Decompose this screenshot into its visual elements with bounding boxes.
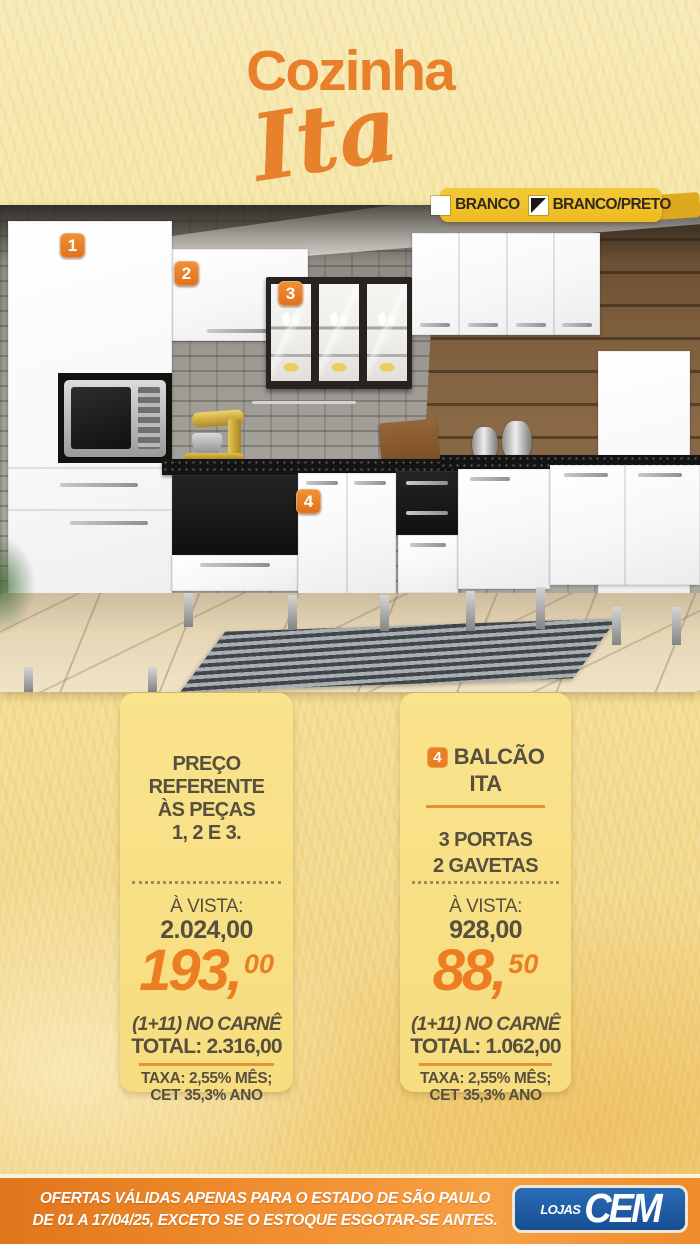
dotted-separator xyxy=(412,881,559,884)
product-name: 4BALCÃO ITA xyxy=(400,743,571,797)
color-option-branco: BRANCO xyxy=(431,196,519,215)
price-block: À VISTA: 928,00 88,50 (1+11) NO CARNÊ TO… xyxy=(400,896,571,1104)
oven-unit xyxy=(172,475,298,555)
logo-small-text: LOJAS xyxy=(540,1202,580,1217)
orange-rule xyxy=(139,1063,274,1066)
total-label: TOTAL: 2.316,00 xyxy=(120,1035,293,1058)
marker-1: 1 xyxy=(60,233,85,258)
carne-label: (1+11) NO CARNÊ xyxy=(400,1014,571,1035)
kitchen-photo: 1 2 3 4 xyxy=(0,205,700,692)
product-features: 3 PORTAS 2 GAVETAS xyxy=(400,827,571,879)
white-black-swatch-icon xyxy=(529,196,548,215)
color-option-label: BRANCO/PRETO xyxy=(553,196,671,214)
marker-4: 4 xyxy=(296,489,321,514)
dotted-separator xyxy=(132,881,281,884)
base-cabinet-right xyxy=(550,465,700,585)
total-label: TOTAL: 1.062,00 xyxy=(400,1035,571,1058)
oven-drawer xyxy=(172,555,298,591)
price-card-balcao: 4BALCÃO ITA 3 PORTAS 2 GAVETAS À VISTA: … xyxy=(400,693,571,1092)
card-title: PREÇO REFERENTE ÀS PEÇAS 1, 2 E 3. xyxy=(120,753,293,845)
tax-info: TAXA: 2,55% MÊS; CET 35,3% ANO xyxy=(120,1070,293,1104)
plant xyxy=(0,535,36,635)
carne-label: (1+11) NO CARNÊ xyxy=(120,1014,293,1035)
avista-label: À VISTA: xyxy=(120,896,293,917)
color-options-badge: BRANCO BRANCO/PRETO xyxy=(440,188,662,222)
marker-3: 3 xyxy=(278,281,303,306)
price-card-pieces-123: PREÇO REFERENTE ÀS PEÇAS 1, 2 E 3. À VIS… xyxy=(120,693,293,1092)
avista-label: À VISTA: xyxy=(400,896,571,917)
logo-big-text: CEM xyxy=(584,1186,659,1232)
flyer-poster: Cozinha Ita xyxy=(0,0,700,1244)
utensil-rail xyxy=(252,401,356,404)
marker-4-badge: 4 xyxy=(427,747,448,768)
white-swatch-icon xyxy=(431,196,450,215)
price-block: À VISTA: 2.024,00 193,00 (1+11) NO CARNÊ… xyxy=(120,896,293,1104)
orange-rule xyxy=(419,1063,552,1066)
color-option-branco-preto: BRANCO/PRETO xyxy=(529,196,671,215)
upper-cabinet-right xyxy=(412,233,600,335)
legal-disclaimer: OFERTAS VÁLIDAS APENAS PARA O ESTADO DE … xyxy=(28,1188,502,1232)
base-panel xyxy=(398,535,458,593)
corner-cabinet xyxy=(458,469,550,589)
footer-bar: OFERTAS VÁLIDAS APENAS PARA O ESTADO DE … xyxy=(0,1174,700,1244)
lojas-cem-logo: LOJAS CEM xyxy=(512,1185,688,1233)
installment-price: 193,00 xyxy=(120,947,293,1010)
color-option-label: BRANCO xyxy=(455,196,519,214)
marker-2: 2 xyxy=(174,261,199,286)
tax-info: TAXA: 2,55% MÊS; CET 35,3% ANO xyxy=(400,1070,571,1104)
installment-price: 88,50 xyxy=(400,947,571,1010)
drawer-unit xyxy=(396,471,458,535)
microwave xyxy=(64,380,166,457)
orange-rule xyxy=(426,805,546,808)
